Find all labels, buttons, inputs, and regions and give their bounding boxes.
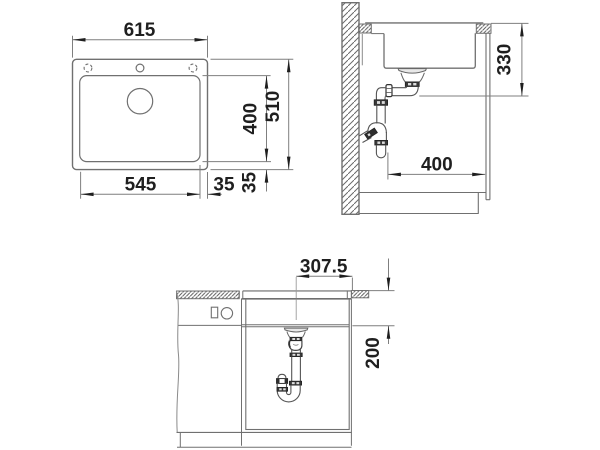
svg-text:615: 615 (124, 20, 156, 41)
svg-text:330: 330 (494, 44, 515, 76)
svg-text:307.5: 307.5 (300, 256, 348, 277)
svg-text:545: 545 (125, 175, 157, 196)
svg-text:35: 35 (240, 172, 261, 194)
svg-text:400: 400 (240, 103, 261, 135)
svg-text:510: 510 (263, 91, 284, 123)
svg-text:200: 200 (363, 337, 384, 369)
svg-text:400: 400 (421, 155, 453, 176)
svg-text:35: 35 (213, 175, 235, 196)
